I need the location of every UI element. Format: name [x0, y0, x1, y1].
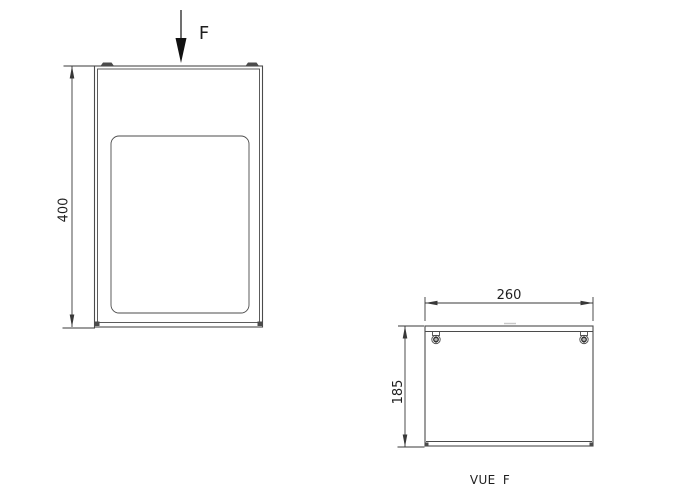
front-window-panel — [111, 136, 249, 313]
vue-f-view: 260 185 VUE F — [391, 288, 593, 487]
screw-right — [580, 332, 588, 344]
mount-tab-right-icon — [246, 63, 260, 67]
dim-400-label: 400 — [57, 198, 72, 223]
dim-arrow-down-icon — [403, 435, 408, 448]
technical-drawing-canvas: F 400 — [0, 0, 700, 498]
force-arrowhead-icon — [176, 38, 187, 63]
force-label: F — [199, 23, 209, 44]
dimension-400: 400 — [57, 66, 96, 328]
view-caption: VUE F — [470, 473, 510, 487]
drawing-sheet: F 400 — [0, 0, 700, 498]
force-arrow: F — [176, 10, 210, 63]
dim-arrow-left-icon — [425, 301, 438, 306]
corner-mark-right — [258, 322, 263, 327]
section-outline — [425, 326, 593, 446]
corner-mark-left — [95, 322, 100, 327]
dimension-185: 185 — [391, 326, 425, 447]
dim-185-label: 185 — [391, 380, 406, 405]
dim-arrow-down-icon — [70, 315, 75, 328]
front-view: F 400 — [57, 10, 263, 328]
dim-260-label: 260 — [497, 288, 522, 303]
dim-arrow-right-icon — [581, 301, 594, 306]
front-inner-edge — [98, 69, 260, 323]
screw-left — [432, 332, 440, 344]
section-corner-mark-right — [590, 443, 593, 446]
dim-arrow-up-icon — [403, 326, 408, 339]
section-corner-mark-left — [426, 443, 429, 446]
front-outer-edge — [95, 66, 263, 327]
dimension-260: 260 — [425, 288, 593, 321]
mount-tab-left-icon — [101, 63, 115, 67]
dim-arrow-up-icon — [70, 66, 75, 79]
